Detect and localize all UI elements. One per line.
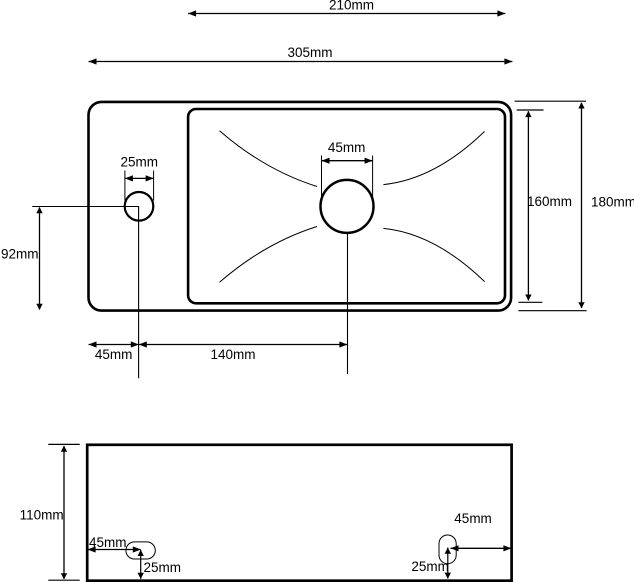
- svg-text:180mm: 180mm: [591, 195, 634, 210]
- svg-text:160mm: 160mm: [527, 194, 572, 209]
- svg-text:210mm: 210mm: [329, 0, 374, 13]
- svg-text:110mm: 110mm: [20, 508, 64, 523]
- svg-text:92mm: 92mm: [1, 247, 39, 262]
- svg-text:305mm: 305mm: [287, 45, 332, 60]
- svg-text:45mm: 45mm: [454, 511, 492, 526]
- svg-text:140mm: 140mm: [210, 347, 255, 362]
- svg-text:25mm: 25mm: [121, 155, 159, 170]
- svg-text:25mm: 25mm: [144, 560, 182, 575]
- svg-text:25mm: 25mm: [411, 559, 449, 574]
- svg-text:45mm: 45mm: [95, 347, 133, 362]
- svg-text:45mm: 45mm: [89, 535, 127, 550]
- svg-text:45mm: 45mm: [328, 140, 366, 155]
